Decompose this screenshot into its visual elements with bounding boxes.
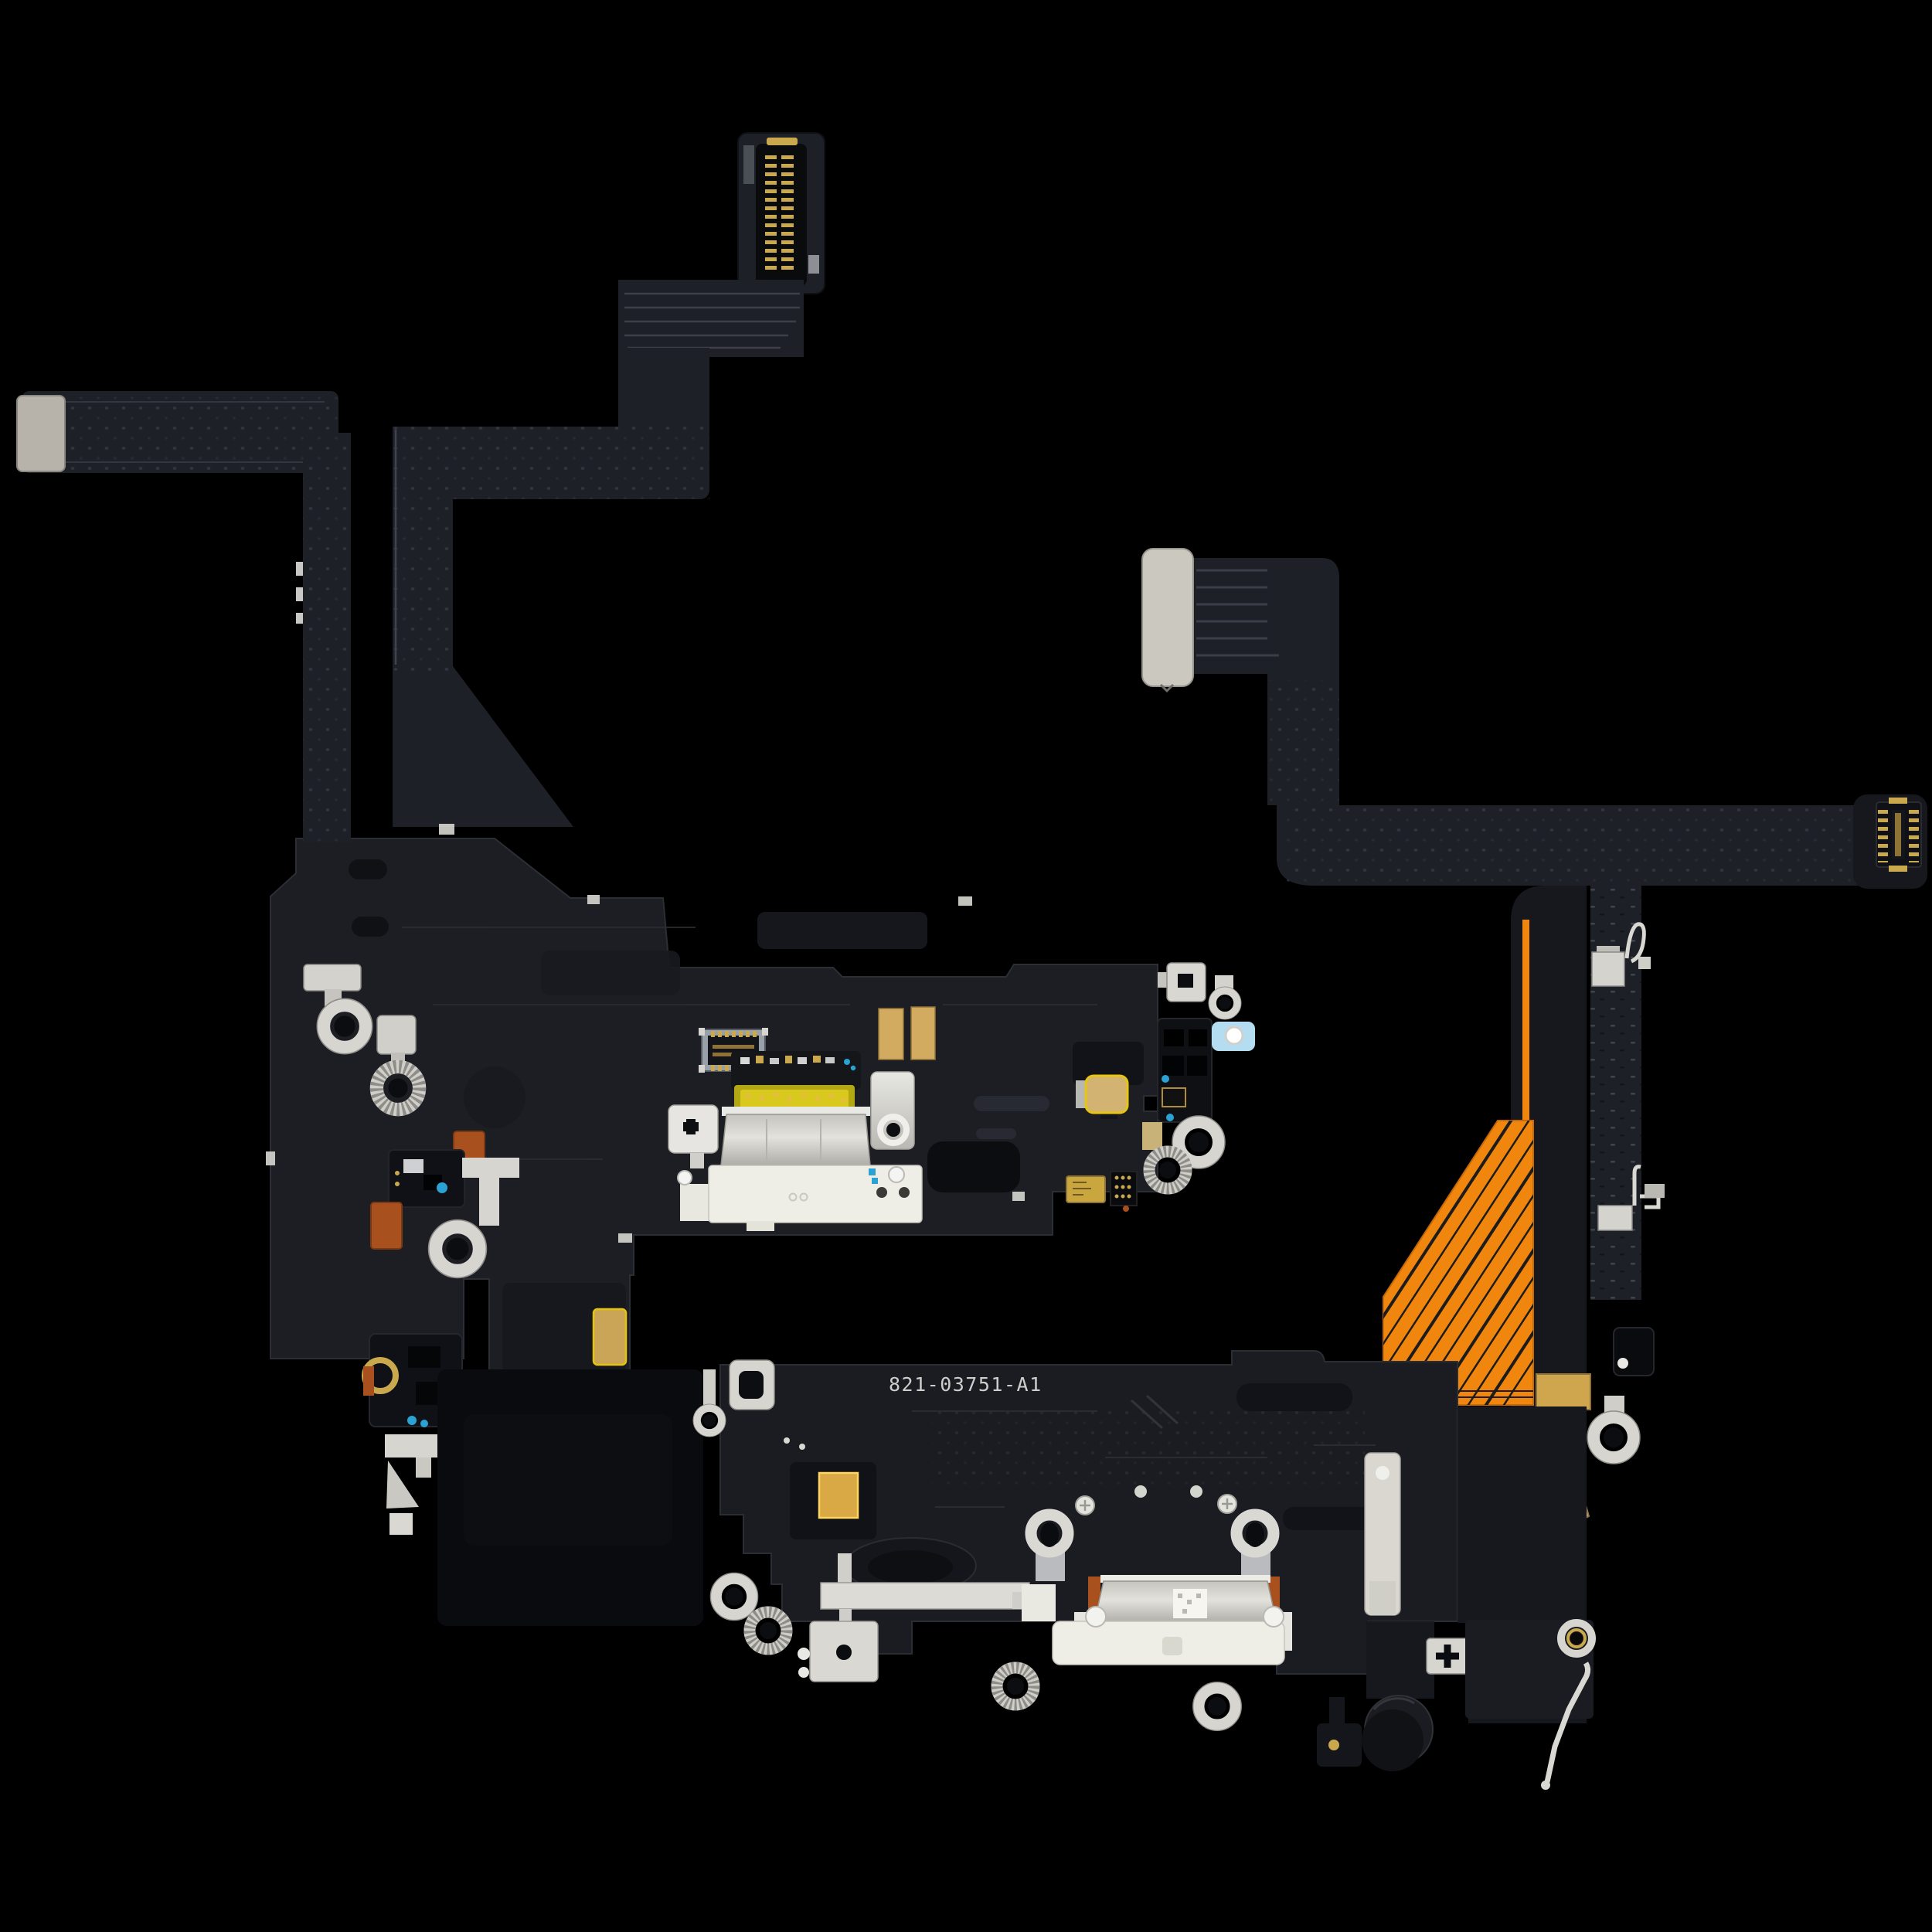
gold-foil-pad: [1536, 1374, 1590, 1410]
connector-white-base: [680, 1165, 922, 1231]
rf-component: [1604, 1328, 1654, 1416]
mounting-eyelet: [1149, 1151, 1186, 1189]
gold-pad-framed: [790, 1462, 876, 1539]
connector-metal-shell: [721, 1114, 870, 1165]
part-number-label: 821-03751-A1: [889, 1373, 1043, 1396]
mounting-eyelet: [429, 1220, 487, 1278]
mounting-eyelet: [317, 998, 372, 1053]
solder-ball: [678, 1171, 692, 1185]
mounting-eyelet: [710, 1573, 757, 1620]
screw-post-right: [1236, 1515, 1274, 1581]
connector-pins-left: [765, 151, 778, 274]
antenna-wire-tip: [1541, 1781, 1550, 1790]
bottom-microphone: [1362, 1621, 1434, 1771]
ribbon-texture: [303, 433, 351, 842]
mounting-eyelet: [1209, 987, 1241, 1019]
bottom-tail-gold-pad: [502, 1283, 626, 1374]
left-flex-stiffener-pad: [17, 396, 65, 471]
upper-charging-flex-assembly: [17, 133, 1255, 1535]
mounting-eyelet: [1587, 1411, 1640, 1464]
screw: [1076, 1496, 1094, 1515]
display-board-connector: [738, 133, 825, 294]
mounting-eyelet: [997, 1668, 1034, 1705]
connector-ribbon: [393, 280, 804, 827]
mounting-ear-right: [871, 1072, 914, 1149]
microphone-component: [1066, 1172, 1137, 1212]
speaker-enclosure-inner: [464, 1414, 672, 1546]
square-grommet-top-left: [730, 1360, 774, 1410]
product-photo-canvas: 821-03751-A1: [0, 0, 1932, 1932]
screw-post-left: [1031, 1515, 1068, 1581]
mounting-eyelet: [750, 1612, 787, 1649]
connector-pins-right: [781, 151, 794, 274]
ribbon-texture: [1267, 680, 1339, 805]
solder-ball: [889, 1167, 904, 1182]
screw: [1218, 1495, 1236, 1513]
side-plate-strip: [1365, 1453, 1400, 1615]
taptic-engine-connector: [1853, 794, 1927, 889]
right-flex-stiffener-pad: [1142, 549, 1193, 686]
solder-tabs: [296, 562, 303, 624]
mounting-eyelet: [1193, 1682, 1242, 1731]
orange-flex-strip: [1522, 920, 1529, 1122]
ribbon-texture: [1283, 805, 1886, 886]
ribbon-texture: [22, 391, 338, 473]
product-photo: 821-03751-A1: [0, 0, 1932, 1932]
mounting-eyelet: [376, 1066, 419, 1109]
contact-tab-gold-dot: [1317, 1697, 1362, 1767]
cross-hole-clip: [1427, 1638, 1468, 1674]
